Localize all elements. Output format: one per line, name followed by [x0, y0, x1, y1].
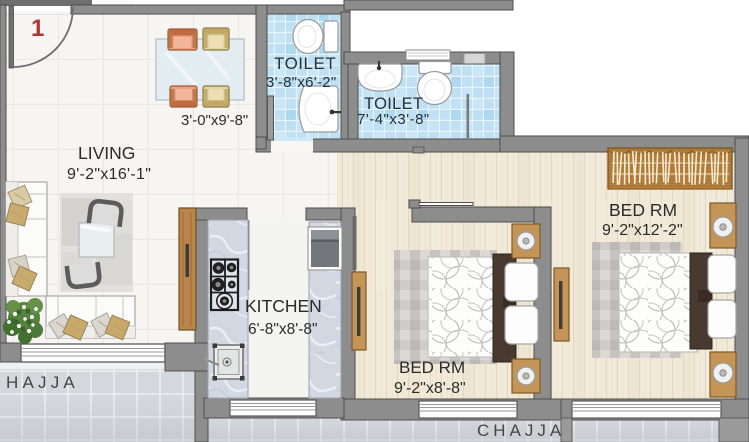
svg-text:1: 1 [31, 15, 44, 42]
svg-text:BED RM: BED RM [399, 358, 465, 377]
svg-text:9'-2"x12'-2": 9'-2"x12'-2" [602, 222, 683, 239]
svg-text:9'-2"x8'-8": 9'-2"x8'-8" [394, 380, 466, 397]
svg-text:BED RM: BED RM [609, 200, 677, 220]
svg-text:3'-0"x9'-8": 3'-0"x9'-8" [181, 112, 248, 129]
svg-text:9'-2"x16'-1": 9'-2"x16'-1" [67, 166, 151, 183]
svg-text:LIVING: LIVING [78, 143, 135, 163]
svg-text:KITCHEN: KITCHEN [245, 296, 322, 316]
svg-text:TOILET: TOILET [274, 54, 336, 73]
svg-text:7'-4"x3'-8": 7'-4"x3'-8" [357, 111, 430, 128]
svg-text:CHAJJA: CHAJJA [477, 421, 565, 440]
svg-text:6'-8"x8'-8": 6'-8"x8'-8" [248, 321, 317, 338]
svg-text:HAJJA: HAJJA [6, 373, 79, 392]
svg-text:3'-8"x6'-2": 3'-8"x6'-2" [266, 74, 337, 91]
